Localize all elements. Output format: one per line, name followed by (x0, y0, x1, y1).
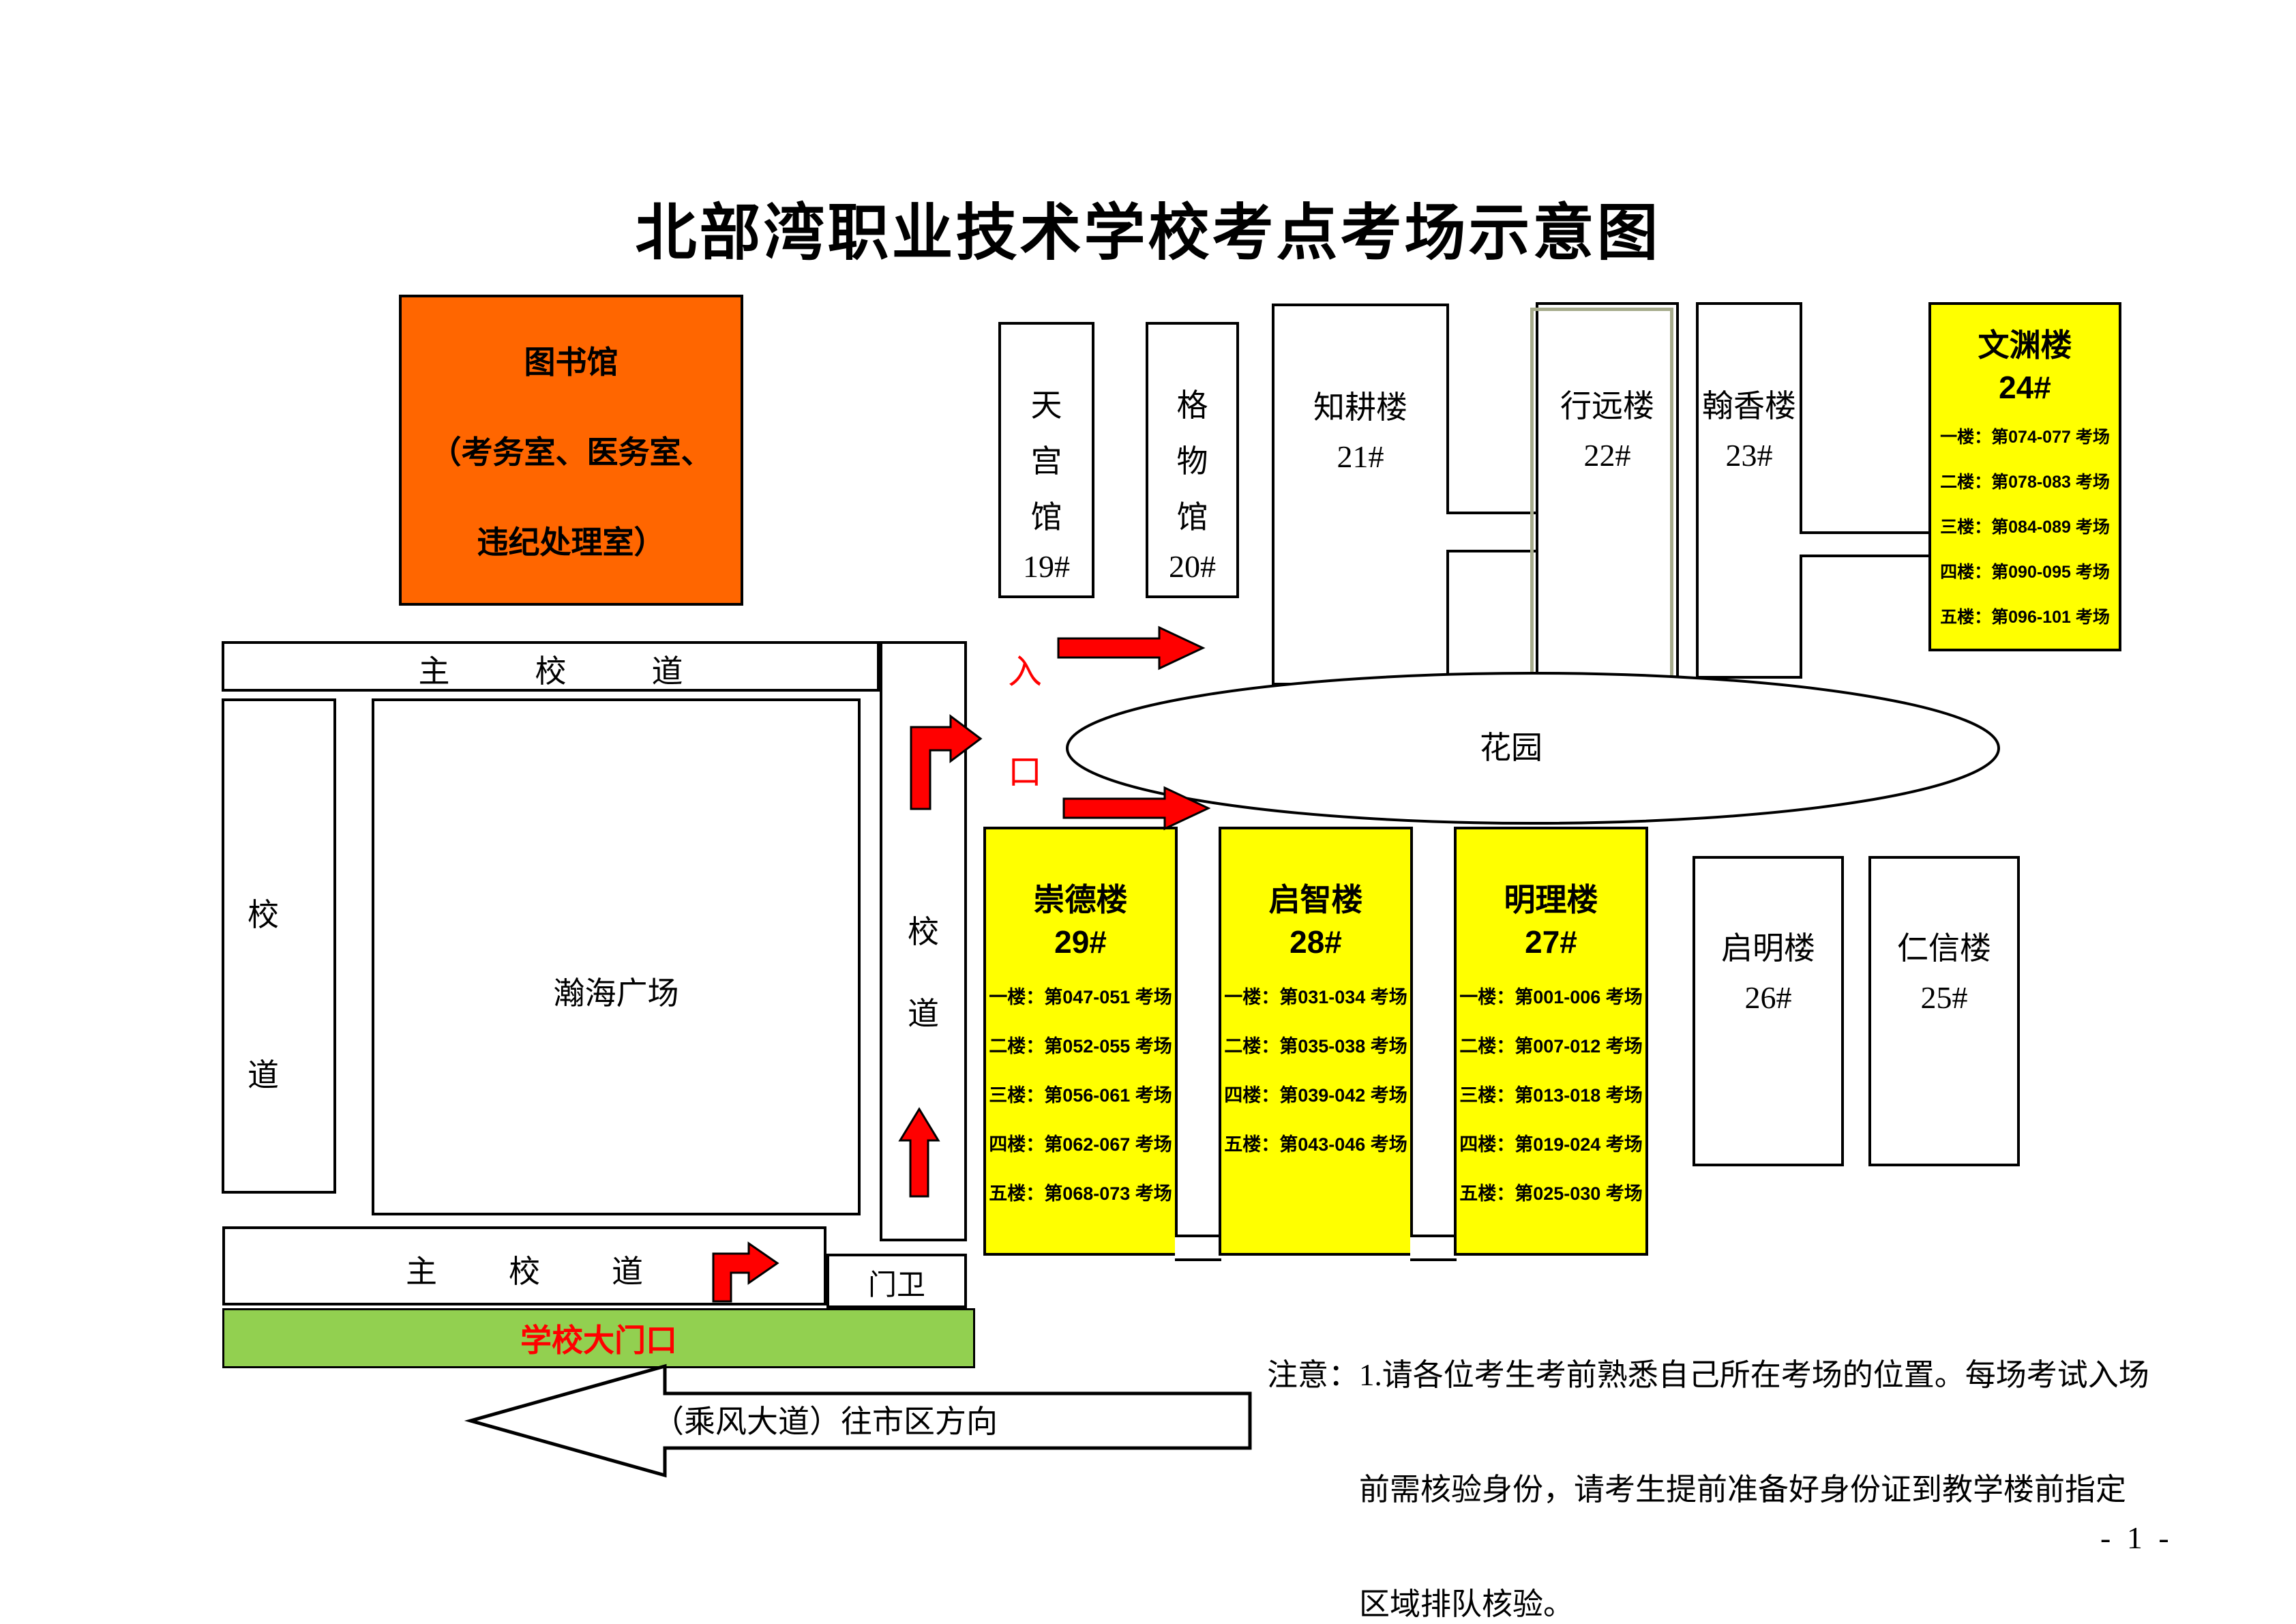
road-char: 主 (419, 647, 450, 692)
road-char: 校 (535, 647, 567, 692)
building-name: 启智楼 (1269, 879, 1363, 921)
building-number: 21# (1337, 439, 1384, 475)
campus-map-page: 北部湾职业技术学校考点考场示意图 图书馆 （考务室、医务室、 违纪处理室） 天 … (0, 0, 2296, 1624)
building-name: 知耕楼 (1313, 383, 1407, 428)
building-wenyuan-24: 文渊楼 24# 一楼：第074-077 考场 二楼：第078-083 考场 三楼… (1928, 302, 2121, 651)
building-name: 翰香楼 (1702, 381, 1796, 426)
hanhai-plaza (372, 698, 861, 1215)
building-number: 24# (1999, 366, 2051, 409)
library-note-line2: 违纪处理室） (477, 518, 666, 563)
guard-label: 门卫 (868, 1262, 925, 1303)
floor-room-range: 四楼：第090-095 考场 (1940, 559, 2110, 583)
building-name: 仁信楼 (1897, 924, 1991, 969)
library-name: 图书馆 (524, 338, 618, 383)
building-qizhi-28: 启智楼 28# 一楼：第031-034 考场 二楼：第035-038 考场 四楼… (1219, 827, 1413, 1256)
building-library: 图书馆 （考务室、医务室、 违纪处理室） (399, 295, 743, 606)
floor-room-range: 五楼：第025-030 考场 (1459, 1179, 1643, 1205)
building-number: 20# (1169, 548, 1216, 585)
note-line: 区域排队核验。 (1267, 1585, 2276, 1623)
building-number: 29# (1054, 921, 1107, 963)
guard-post: 门卫 (826, 1254, 967, 1308)
floor-room-range: 三楼：第084-089 考场 (1940, 514, 2110, 538)
floor-room-range: 一楼：第047-051 考场 (989, 982, 1172, 1009)
building-name: 崇德楼 (1034, 879, 1128, 921)
building-mingli-27: 明理楼 27# 一楼：第001-006 考场 二楼：第007-012 考场 三楼… (1454, 827, 1648, 1256)
road-main-bottom-label: 主 校 道 (222, 1247, 908, 1292)
corridor-21-22 (1446, 512, 1538, 552)
floor-room-range: 四楼：第062-067 考场 (989, 1130, 1172, 1156)
floor-room-range: 三楼：第056-061 考场 (989, 1080, 1172, 1107)
road-char: 道 (248, 1050, 279, 1095)
building-name-char: 馆 (1177, 492, 1208, 537)
building-number: 25# (1921, 979, 1968, 1016)
corridor-23-24 (1800, 531, 1931, 557)
floor-room-range: 四楼：第019-024 考场 (1459, 1130, 1643, 1156)
building-zhigeng-21: 知耕楼 21# (1272, 304, 1449, 685)
building-name: 明理楼 (1504, 879, 1598, 921)
note-line: 前需核验身份，请考生提前准备好身份证到教学楼前指定 (1267, 1471, 2276, 1509)
building-name: 文渊楼 (1978, 324, 2072, 366)
building-renxin-25: 仁信楼 25# (1868, 856, 2020, 1166)
building-chongde-29: 崇德楼 29# 一楼：第047-051 考场 二楼：第052-055 考场 三楼… (983, 827, 1178, 1256)
note-line: 注意：1.请各位考生考前熟悉自己所在考场的位置。每场考试入场 (1267, 1356, 2276, 1394)
building-number: 19# (1023, 548, 1070, 585)
floor-room-range: 二楼：第052-055 考场 (989, 1031, 1172, 1058)
building-number: 27# (1525, 921, 1577, 963)
building-name-char: 物 (1177, 437, 1208, 482)
road-char: 主 (406, 1247, 437, 1292)
road-left-vertical (222, 698, 336, 1194)
road-char: 校 (248, 890, 279, 935)
building-number: 23# (1726, 437, 1773, 473)
building-number: 28# (1289, 921, 1342, 963)
entrance-label-char1: 入 (1008, 645, 1042, 694)
building-name-char: 天 (1031, 381, 1062, 426)
floor-room-range: 一楼：第074-077 考场 (1940, 424, 2110, 448)
floor-room-range: 二楼：第078-083 考场 (1940, 469, 2110, 493)
road-main-top-label: 主 校 道 (222, 647, 982, 692)
road-char: 校 (509, 1247, 540, 1292)
entrance-arrow-lower-icon (1064, 788, 1208, 829)
building-name-char: 格 (1177, 381, 1208, 426)
floor-room-range: 五楼：第043-046 考场 (1224, 1130, 1407, 1156)
floor-room-range: 二楼：第035-038 考场 (1224, 1031, 1407, 1058)
building-gewu-20: 格 物 馆 20# (1146, 322, 1239, 598)
building-number: 26# (1745, 979, 1792, 1016)
road-char: 道 (612, 1247, 643, 1292)
road-char: 道 (652, 647, 683, 692)
avenue-direction-label: （乘风大道）往市区方向 (586, 1402, 1064, 1442)
floor-room-range: 二楼：第007-012 考场 (1459, 1031, 1643, 1058)
building-name-char: 馆 (1031, 492, 1062, 537)
floor-room-range: 五楼：第096-101 考场 (1940, 604, 2110, 628)
road-char: 道 (908, 989, 939, 1034)
floor-room-range: 一楼：第031-034 考场 (1224, 982, 1407, 1009)
building-hanxiang-23: 翰香楼 23# (1696, 302, 1802, 679)
entrance-arrow-upper-icon (1058, 628, 1203, 668)
page-number: - 1 - (2100, 1520, 2173, 1556)
corridor-28-27 (1410, 1235, 1457, 1261)
garden-label: 花园 (1480, 728, 1542, 768)
corridor-29-28 (1175, 1235, 1221, 1261)
school-gate-bar: 学校大门口 (222, 1308, 975, 1368)
hanhai-plaza-label: 瀚海广场 (372, 974, 861, 1014)
floor-room-range: 四楼：第039-042 考场 (1224, 1080, 1407, 1107)
building-xingyuan-shadow-outline (1530, 308, 1673, 684)
floor-room-range: 三楼：第013-018 考场 (1459, 1080, 1643, 1107)
library-note-line1: （考务室、医务室、 (430, 428, 713, 473)
page-title: 北部湾职业技术学校考点考场示意图 (0, 183, 2296, 271)
school-gate-label: 学校大门口 (520, 1316, 677, 1361)
notes-block: 注意：1.请各位考生考前熟悉自己所在考场的位置。每场考试入场 前需核验身份，请考… (1267, 1280, 2276, 1624)
building-tiangong-19: 天 宫 馆 19# (998, 322, 1094, 598)
road-char: 校 (908, 907, 939, 952)
entrance-label-char2: 口 (1008, 745, 1042, 794)
building-qiming-26: 启明楼 26# (1693, 856, 1844, 1166)
building-name: 启明楼 (1721, 924, 1815, 969)
building-name-char: 宫 (1031, 437, 1062, 482)
floor-room-range: 一楼：第001-006 考场 (1459, 982, 1643, 1009)
floor-room-range: 五楼：第068-073 考场 (989, 1179, 1172, 1205)
